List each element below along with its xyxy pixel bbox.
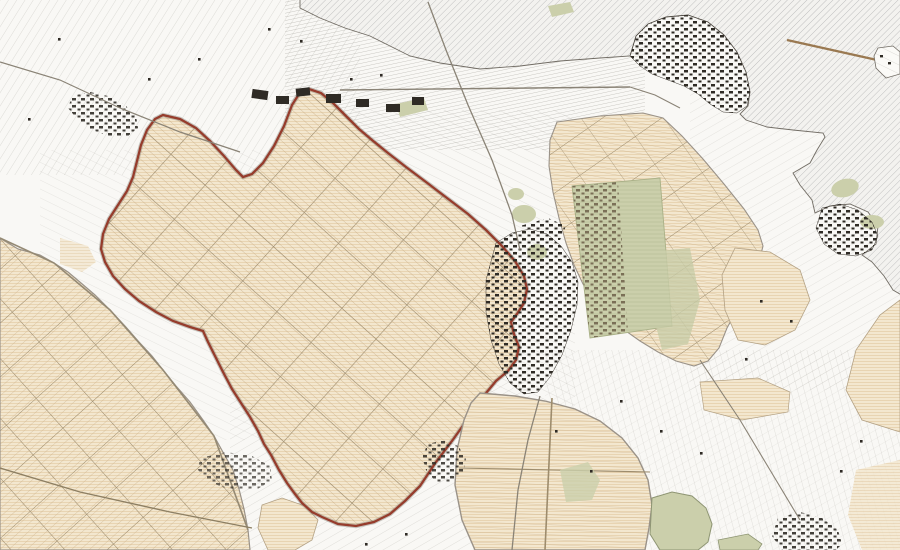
map-canvas [0, 0, 900, 550]
map-viewport[interactable] [0, 0, 900, 550]
park-central-town-1 [512, 205, 536, 223]
park-central-town-3 [508, 188, 524, 200]
